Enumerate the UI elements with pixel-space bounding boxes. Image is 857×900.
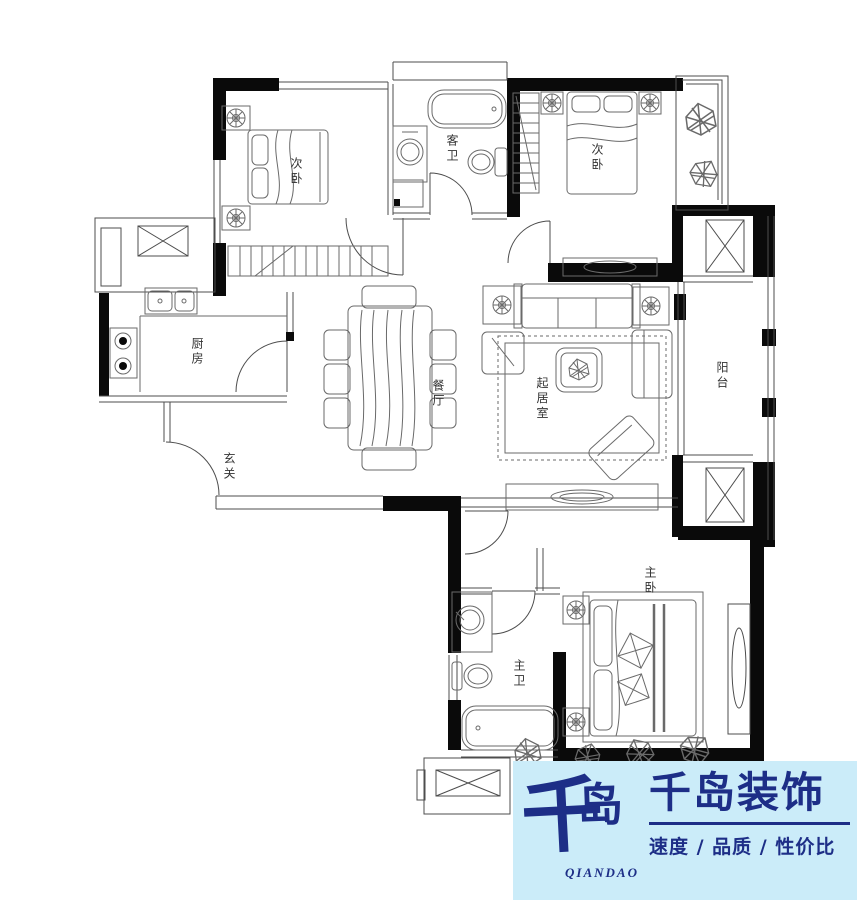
room-label-balcony: 阳台 xyxy=(716,361,728,391)
room-label-dining: 餐厅 xyxy=(432,379,444,409)
furniture-layer xyxy=(110,90,723,773)
walls-layer xyxy=(99,78,776,768)
brand-divider xyxy=(649,822,850,825)
bed xyxy=(590,600,696,736)
doors-layer xyxy=(166,173,550,634)
room-label-master-bedroom: 主卧 xyxy=(644,566,656,596)
kitchen-door-arc xyxy=(236,341,287,392)
living-furniture xyxy=(482,284,672,510)
room-label-entry: 玄关 xyxy=(223,452,235,482)
room-label-guest-bath: 客卫 xyxy=(446,134,458,164)
tv-console xyxy=(506,484,658,510)
bedroom-ne-door-arc xyxy=(508,221,550,263)
chair xyxy=(430,330,456,360)
chair xyxy=(324,364,350,394)
pillow xyxy=(252,168,268,198)
room-label-master-bath: 主卫 xyxy=(513,659,525,689)
entry-door-arc xyxy=(166,442,219,495)
pillow xyxy=(594,670,612,730)
room-label-bedroom-nw: 次卧 xyxy=(290,157,302,187)
room-label-living: 起居室 xyxy=(536,377,548,422)
chair xyxy=(362,448,416,470)
company-name: 千岛装饰 xyxy=(649,769,825,817)
brand-slogan: 速度 / 品质 / 性价比 xyxy=(649,832,835,859)
bed xyxy=(248,130,328,204)
bedroom-nw-furniture xyxy=(222,106,388,276)
brand-logo-mark: 千 岛 QIANDAO xyxy=(519,761,651,900)
chair xyxy=(324,398,350,428)
chair xyxy=(324,330,350,360)
bathtub xyxy=(428,90,506,128)
chaise xyxy=(586,414,656,483)
sofa xyxy=(522,284,632,328)
pillow xyxy=(572,96,600,112)
pillow xyxy=(604,96,632,112)
stove xyxy=(110,328,137,378)
guest-bath-door-arc xyxy=(430,173,472,215)
logo-caption: QIANDAO xyxy=(565,865,639,881)
dining-furniture xyxy=(324,286,456,470)
pillow xyxy=(594,606,612,666)
master-bath-fixtures xyxy=(452,592,558,750)
loveseat xyxy=(632,330,672,398)
master-entry-door-arc xyxy=(465,511,508,554)
floorplan-page: 次卧 客卫 次卧 厨房 玄关 餐厅 起居室 阳台 主卫 主卧 千 岛 QIAND… xyxy=(0,0,857,900)
bedroom-ne-furniture xyxy=(513,92,661,276)
chair xyxy=(362,286,416,308)
logo-mark-char-dao: 岛 xyxy=(576,768,624,836)
sink-counter xyxy=(393,126,427,182)
brand-banner: 千 岛 QIANDAO 千岛装饰 速度 / 品质 / 性价比 xyxy=(513,761,857,900)
armchair xyxy=(482,332,524,374)
pillow xyxy=(252,135,268,165)
room-label-kitchen: 厨房 xyxy=(191,337,203,367)
windows-layer xyxy=(95,62,774,814)
bed-frame xyxy=(583,592,703,742)
master-bedroom-furniture xyxy=(563,592,703,742)
closet xyxy=(228,246,388,276)
master-bath-door-arc xyxy=(492,591,535,634)
room-label-bedroom-ne: 次卧 xyxy=(591,143,603,173)
